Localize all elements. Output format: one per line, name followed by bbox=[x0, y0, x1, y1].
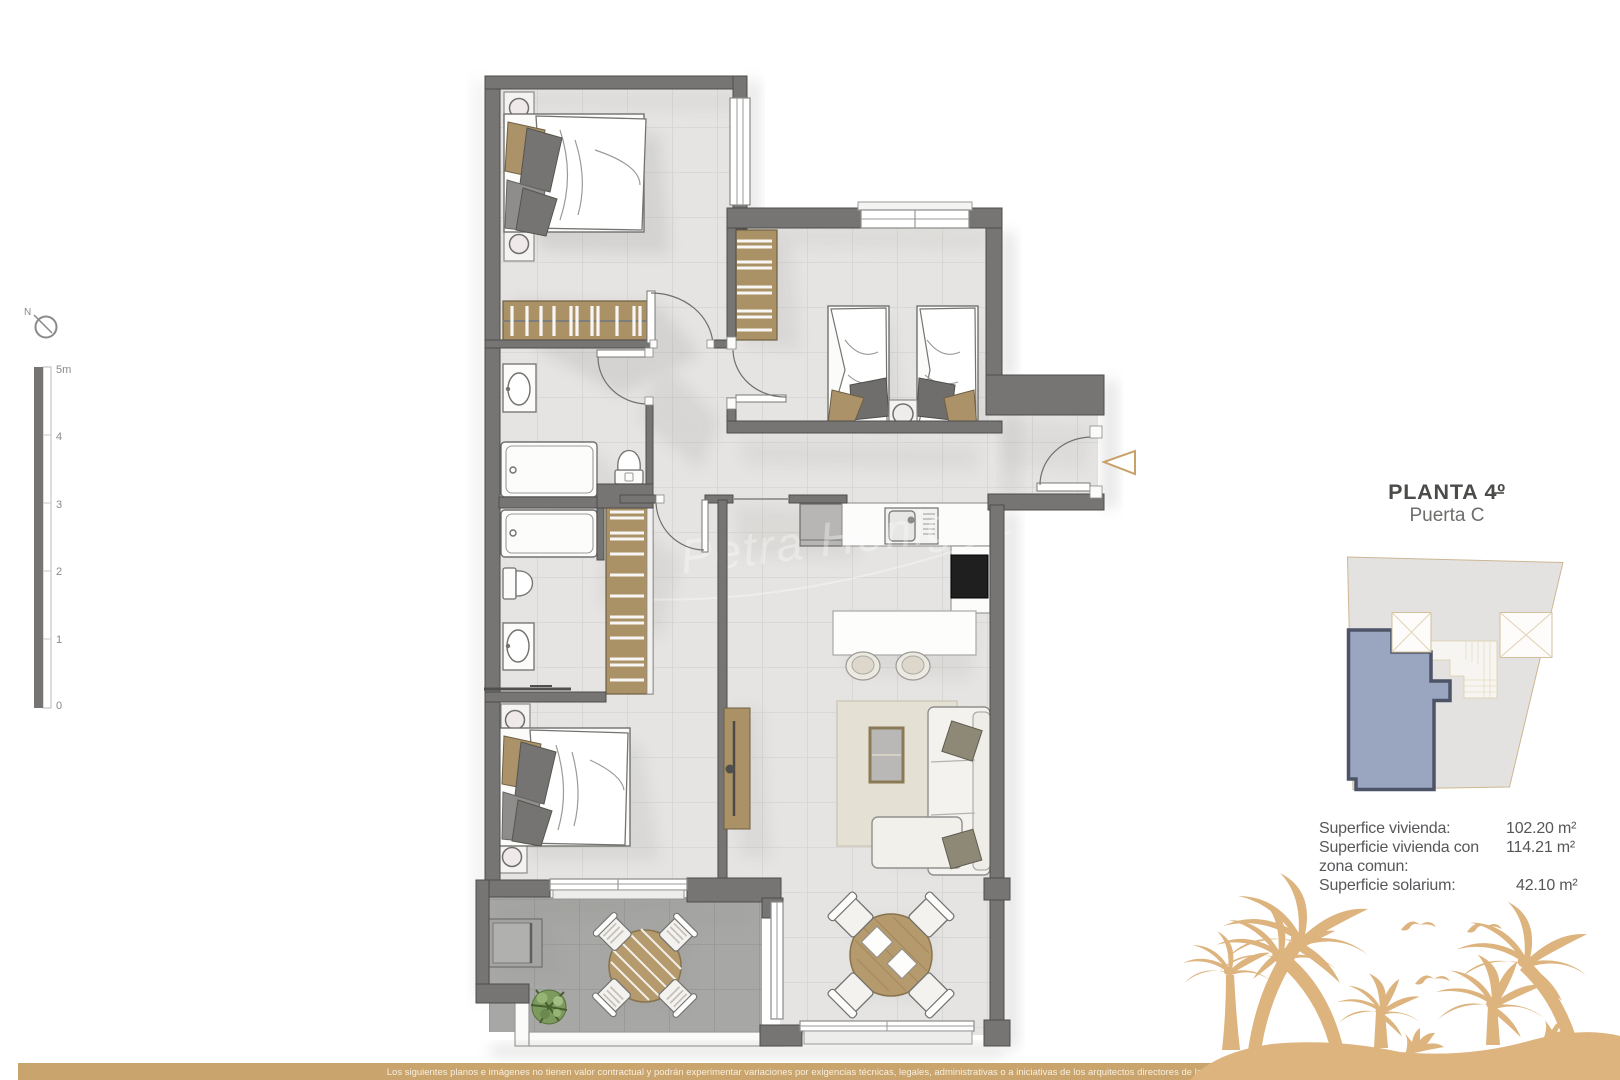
svg-text:42.10 m²: 42.10 m² bbox=[1516, 877, 1578, 894]
svg-text:PLANTA 4º: PLANTA 4º bbox=[1388, 480, 1506, 504]
svg-text:0: 0 bbox=[56, 700, 62, 712]
svg-text:4: 4 bbox=[56, 431, 62, 443]
svg-text:2: 2 bbox=[56, 566, 62, 578]
svg-text:1: 1 bbox=[56, 634, 62, 646]
svg-text:Superfice vivienda:: Superfice vivienda: bbox=[1319, 820, 1450, 837]
svg-text:N: N bbox=[24, 307, 31, 318]
svg-text:Superficie solarium:: Superficie solarium: bbox=[1319, 877, 1456, 894]
svg-text:Los siguientes planos e imágen: Los siguientes planos e imágenes no tien… bbox=[387, 1067, 1234, 1078]
svg-text:114.21 m²: 114.21 m² bbox=[1506, 839, 1576, 856]
svg-text:3: 3 bbox=[56, 499, 62, 511]
svg-text:zona comun:: zona comun: bbox=[1319, 858, 1408, 875]
svg-text:5m: 5m bbox=[56, 364, 71, 376]
svg-text:Puerta C: Puerta C bbox=[1410, 505, 1485, 526]
svg-text:Superficie vivienda con: Superficie vivienda con bbox=[1319, 839, 1479, 856]
svg-text:102.20 m²: 102.20 m² bbox=[1506, 820, 1577, 837]
